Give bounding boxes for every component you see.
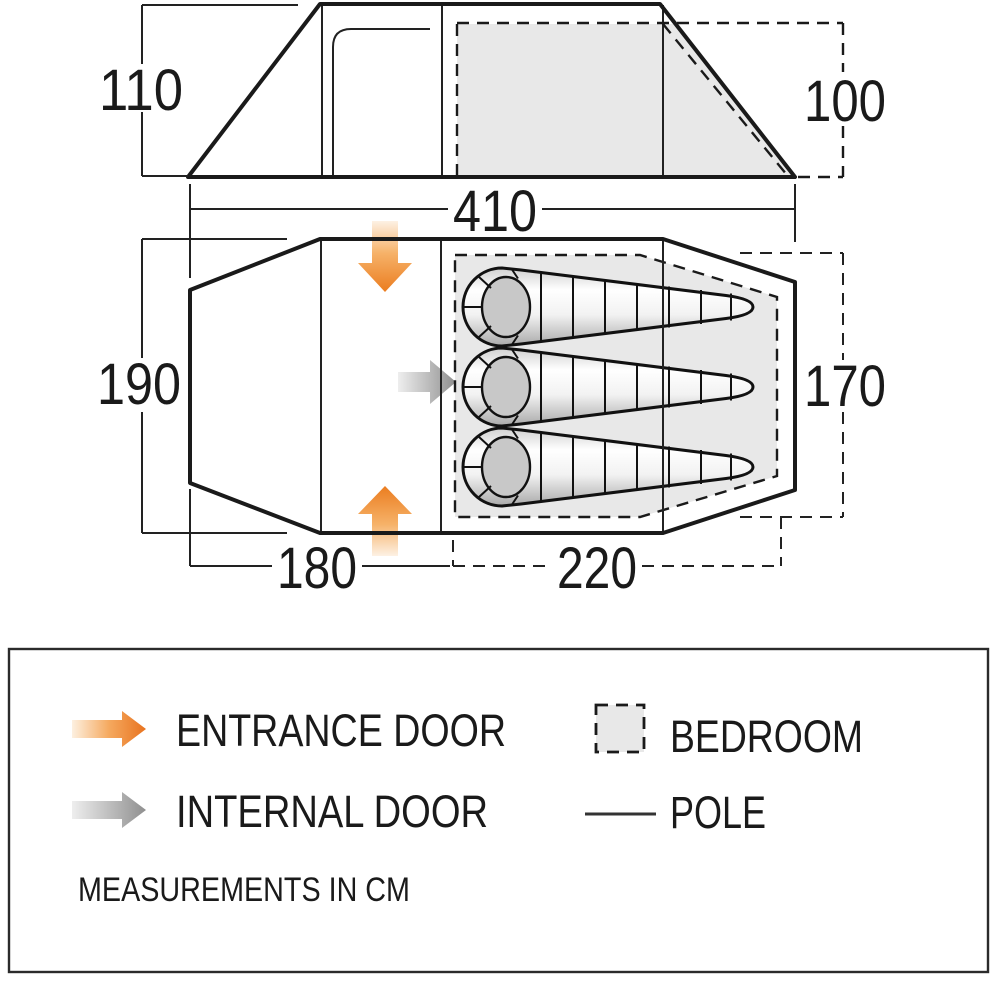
dim-220: 220 xyxy=(453,517,781,601)
dim-170-label: 170 xyxy=(804,354,886,419)
measurements-note: MEASUREMENTS IN CM xyxy=(78,871,410,909)
dim-110-label: 110 xyxy=(99,58,183,123)
bedroom-swatch-icon xyxy=(596,705,644,752)
dim-110: 110 xyxy=(99,5,298,176)
dim-180-label: 180 xyxy=(277,536,357,601)
pole-label: POLE xyxy=(670,787,766,838)
dim-100-label: 100 xyxy=(804,69,886,134)
internal-door-arrow xyxy=(398,360,456,404)
bedroom-label: BEDROOM xyxy=(670,711,863,762)
internal-door-label: INTERNAL DOOR xyxy=(176,786,488,837)
side-door-outline xyxy=(333,29,430,176)
entrance-door-arrow-bottom xyxy=(358,486,412,556)
legend: ENTRANCE DOOR BEDROOM INTERNAL DOOR POLE… xyxy=(9,649,988,972)
side-elevation-view: 110 100 xyxy=(99,4,886,177)
entrance-door-label: ENTRANCE DOOR xyxy=(176,705,506,756)
dim-220-label: 220 xyxy=(557,536,637,601)
legend-box xyxy=(9,649,988,972)
side-bedroom-area xyxy=(457,24,793,176)
floor-plan-view: 190 170 180 220 xyxy=(97,221,886,601)
tent-diagram-page: 110 100 410 190 17 xyxy=(0,0,1000,985)
dim-190-label: 190 xyxy=(97,352,181,417)
entrance-door-arrow-top xyxy=(358,221,412,292)
tent-diagram: 110 100 410 190 17 xyxy=(0,0,1000,985)
dim-410-label: 410 xyxy=(453,179,537,244)
